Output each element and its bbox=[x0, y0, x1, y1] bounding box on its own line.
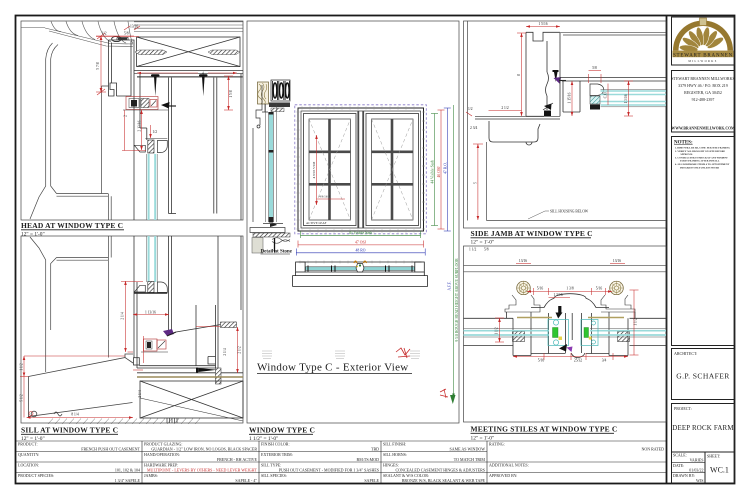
svg-text:TBD: TBD bbox=[371, 447, 379, 452]
svg-text:EXTERIOR TRIM:: EXTERIOR TRIM: bbox=[261, 452, 293, 457]
svg-text:STEWART BRANNEN MILLWORKS: STEWART BRANNEN MILLWORKS bbox=[671, 76, 734, 81]
svg-text:13/16: 13/16 bbox=[519, 259, 527, 263]
svg-text:5/8: 5/8 bbox=[124, 32, 129, 36]
svg-text:2: 2 bbox=[124, 115, 128, 117]
svg-text:1/2: 1/2 bbox=[153, 130, 158, 134]
svg-text:44 Visible Sash: 44 Visible Sash bbox=[431, 160, 435, 184]
svg-text:BM:TS:MOD: BM:TS:MOD bbox=[357, 457, 380, 462]
svg-text:WWW.BRANNENMILLWORK.COM: WWW.BRANNENMILLWORK.COM bbox=[671, 127, 735, 131]
svg-text:1 13/16: 1 13/16 bbox=[145, 311, 156, 315]
svg-text:2 13/16: 2 13/16 bbox=[138, 120, 142, 131]
svg-text:FINISH COLOR:: FINISH COLOR: bbox=[261, 442, 290, 447]
svg-text:PRODUCT:: PRODUCT: bbox=[18, 442, 38, 447]
svg-text:SAPELE - 4": SAPELE - 4" bbox=[235, 478, 257, 483]
svg-text:1/2: 1/2 bbox=[102, 32, 107, 36]
svg-text:TO MATCH TRIM: TO MATCH TRIM bbox=[454, 457, 486, 462]
svg-text:JAMBS:: JAMBS: bbox=[144, 473, 158, 478]
svg-text:SAPELE: SAPELE bbox=[364, 478, 379, 483]
svg-text:QUANTITY:: QUANTITY: bbox=[18, 452, 39, 457]
svg-text:1 1/2: 1 1/2 bbox=[634, 318, 638, 325]
svg-text:5: 5 bbox=[474, 182, 478, 184]
svg-text:FRENCH - RH ACTIVE: FRENCH - RH ACTIVE bbox=[217, 457, 258, 462]
svg-text:1 1/2: 1 1/2 bbox=[20, 363, 24, 370]
svg-text:1 5/8: 1 5/8 bbox=[229, 90, 233, 97]
svg-text:12" = 1'-0": 12" = 1'-0" bbox=[471, 240, 495, 246]
svg-text:STEWART BRANNEN: STEWART BRANNEN bbox=[673, 53, 733, 58]
svg-text:5/16: 5/16 bbox=[537, 287, 544, 291]
svg-text:CONCEALED CASEMENT HINGES & AD: CONCEALED CASEMENT HINGES & ADJUSTERS bbox=[396, 468, 486, 473]
svg-text:48 RO: 48 RO bbox=[355, 248, 365, 252]
svg-text:WINDOW TYPE C: WINDOW TYPE C bbox=[249, 426, 315, 435]
svg-text:01/03/22: 01/03/22 bbox=[689, 468, 703, 473]
svg-text:SILL HORNS:: SILL HORNS: bbox=[383, 452, 407, 457]
svg-text:5/8: 5/8 bbox=[592, 66, 597, 70]
svg-text:1 5/16: 1 5/16 bbox=[538, 22, 547, 26]
svg-text:5/8: 5/8 bbox=[484, 248, 489, 252]
svg-text:SILL AT WINDOW TYPE C: SILL AT WINDOW TYPE C bbox=[21, 426, 118, 435]
svg-text:G.P. SCHAFER: G.P. SCHAFER bbox=[676, 372, 730, 381]
svg-text:FRENCH PUSH OUT CASEMENT: FRENCH PUSH OUT CASEMENT bbox=[81, 447, 140, 452]
svg-text:MEETING STILES AT WINDOW TYPE: MEETING STILES AT WINDOW TYPE C bbox=[471, 425, 618, 434]
svg-text:MULTIPOINT - LEVERS BY OTHERS: MULTIPOINT - LEVERS BY OTHERS - NEED LEV… bbox=[147, 468, 258, 473]
svg-text:SCALE:: SCALE: bbox=[673, 453, 687, 458]
svg-text:2 1/4: 2 1/4 bbox=[223, 348, 227, 355]
svg-text:ARCHITECT:: ARCHITECT: bbox=[674, 351, 697, 356]
svg-text:SIDE JAMB AT WINDOW TYPE C: SIDE JAMB AT WINDOW TYPE C bbox=[471, 229, 593, 238]
svg-text:SAME AS WINDOW: SAME AS WINDOW bbox=[450, 447, 486, 452]
svg-text:HAND/OPERATION:: HAND/OPERATION: bbox=[144, 452, 180, 457]
svg-text:9 5/8 ROUGH HEAD HEIGHT ABOVE: 9 5/8 ROUGH HEAD HEIGHT ABOVE SUBFLOOR bbox=[455, 258, 459, 342]
svg-text:DRAWN BY:: DRAWN BY: bbox=[673, 473, 695, 478]
svg-text:12" = 1'-0": 12" = 1'-0" bbox=[21, 232, 45, 238]
svg-text:1 3/16: 1 3/16 bbox=[553, 293, 562, 297]
svg-text:2 1/4: 2 1/4 bbox=[121, 312, 125, 319]
svg-text:SILL HOUSING BELOW: SILL HOUSING BELOW bbox=[550, 210, 589, 214]
svg-text:5 1/2: 5 1/2 bbox=[20, 394, 24, 401]
svg-text:PROJECT:: PROJECT: bbox=[674, 406, 692, 411]
svg-text:DATE:: DATE: bbox=[673, 463, 684, 468]
svg-text:1 3/16: 1 3/16 bbox=[624, 94, 628, 103]
svg-text:46 OSJ: 46 OSJ bbox=[437, 166, 441, 178]
svg-text:5/16: 5/16 bbox=[538, 359, 545, 363]
svg-text:8 1/4: 8 1/4 bbox=[71, 413, 78, 417]
svg-text:47 OSJ: 47 OSJ bbox=[355, 241, 367, 245]
svg-text:4 9/16 VSM: 4 9/16 VSM bbox=[312, 162, 316, 179]
svg-text:5/16: 5/16 bbox=[596, 287, 603, 291]
svg-text:45 Visible Sash: 45 Visible Sash bbox=[349, 231, 373, 235]
svg-text:4 9/16 *: 4 9/16 * bbox=[319, 195, 330, 199]
svg-text:2 1/2: 2 1/2 bbox=[501, 106, 508, 110]
svg-text:2 1/2: 2 1/2 bbox=[238, 346, 242, 353]
svg-text:C.O.: C.O. bbox=[604, 92, 608, 99]
svg-text:APPROVED BY:: APPROVED BY: bbox=[489, 473, 517, 478]
svg-text:SHEET:: SHEET: bbox=[707, 454, 720, 459]
svg-text:1 1/2: 1 1/2 bbox=[469, 248, 476, 252]
svg-text:NOTES:: NOTES: bbox=[674, 141, 693, 146]
svg-text:VARIES: VARIES bbox=[690, 457, 704, 462]
svg-text:Window Type C - Exterior View: Window Type C - Exterior View bbox=[257, 362, 409, 374]
svg-text:1 3/8: 1 3/8 bbox=[566, 287, 573, 291]
svg-text:912-488-2397: 912-488-2397 bbox=[692, 97, 715, 102]
svg-text:A.F.F.: A.F.F. bbox=[448, 281, 452, 290]
svg-text:2 1/4: 2 1/4 bbox=[138, 390, 142, 397]
svg-text:1 3/4" SAPELE: 1 3/4" SAPELE bbox=[115, 478, 141, 483]
svg-text:DEEP ROCK FARM: DEEP ROCK FARM bbox=[672, 425, 733, 432]
svg-text:1/2: 1/2 bbox=[468, 107, 473, 111]
svg-text:1 15/16: 1 15/16 bbox=[568, 92, 572, 103]
svg-text:MILLWORKS: MILLWORKS bbox=[688, 60, 717, 63]
svg-text:PUSH OUT CASEMENT - MODIFIED F: PUSH OUT CASEMENT - MODIFIED FOR 1 3/4" … bbox=[279, 468, 379, 473]
svg-text:PRODUCT SPECIES:: PRODUCT SPECIES: bbox=[18, 473, 54, 478]
svg-text:8: 8 bbox=[517, 74, 521, 76]
svg-text:5 7/8: 5 7/8 bbox=[96, 62, 100, 69]
svg-text:RATING:: RATING: bbox=[489, 442, 505, 447]
svg-text:2 3/4: 2 3/4 bbox=[470, 126, 477, 130]
svg-text:PROGRESS ONLY UNLESS NOTED: PROGRESS ONLY UNLESS NOTED bbox=[680, 166, 719, 169]
svg-text:1 1/2: 1 1/2 bbox=[495, 327, 499, 334]
svg-text:LOCATION:: LOCATION: bbox=[18, 463, 39, 468]
svg-text:WJS: WJS bbox=[696, 478, 704, 483]
svg-text:ADDITIONAL NOTES:: ADDITIONAL NOTES: bbox=[489, 463, 529, 468]
svg-text:3/4: 3/4 bbox=[602, 359, 607, 363]
svg-text:WC.1: WC.1 bbox=[710, 466, 729, 475]
svg-text:4: 4 bbox=[202, 71, 204, 75]
svg-text:13/16: 13/16 bbox=[613, 259, 621, 263]
svg-text:HEAD AT WINDOW TYPE C: HEAD AT WINDOW TYPE C bbox=[21, 221, 123, 230]
svg-text:47 R.O.: 47 R.O. bbox=[444, 162, 448, 174]
svg-text:NON RATED: NON RATED bbox=[641, 447, 664, 452]
svg-text:25/32: 25/32 bbox=[574, 359, 582, 363]
svg-text:3379 HWY 46 / P.O. BOX 219: 3379 HWY 46 / P.O. BOX 219 bbox=[678, 83, 728, 88]
svg-text:SILL SPECIES:: SILL SPECIES: bbox=[261, 473, 287, 478]
svg-text:SILL FINISH:: SILL FINISH: bbox=[383, 442, 406, 447]
svg-text:13/16: 13/16 bbox=[130, 25, 138, 29]
svg-text:ACTIVE LEAF: ACTIVE LEAF bbox=[306, 221, 327, 225]
